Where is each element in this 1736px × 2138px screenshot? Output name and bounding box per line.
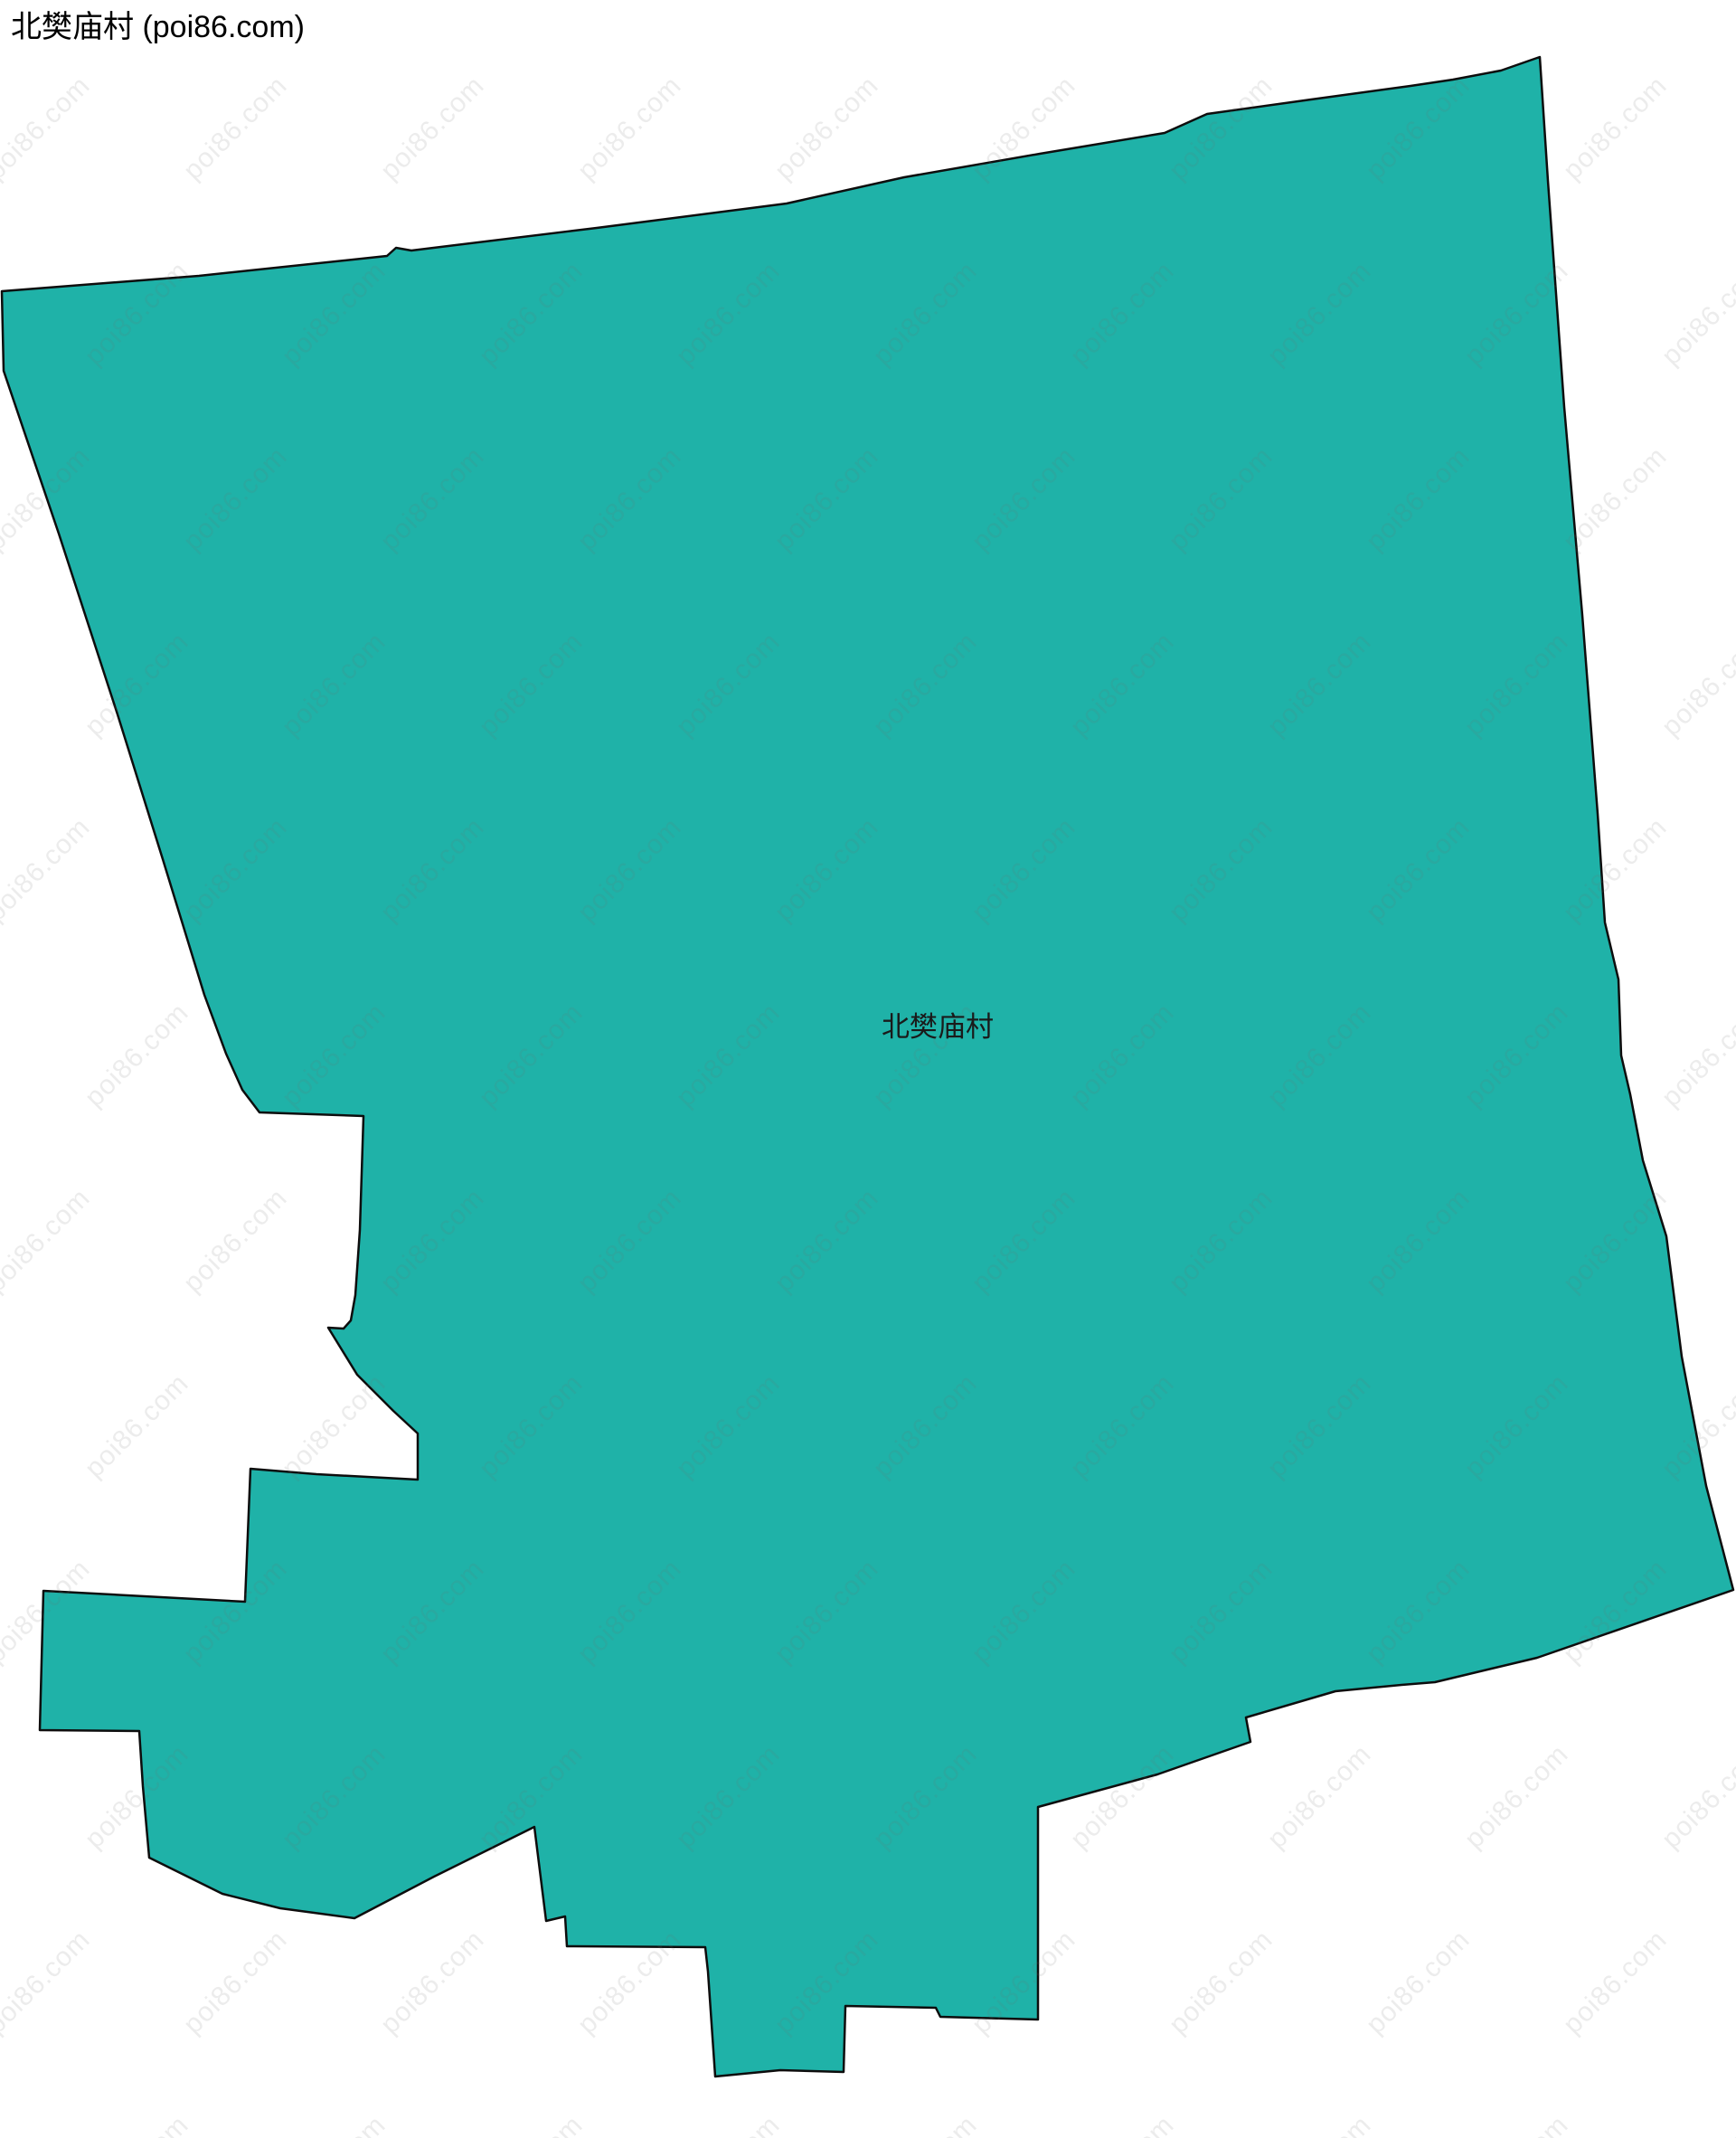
page-title: 北樊庙村 (poi86.com) bbox=[11, 9, 305, 46]
region-map-svg bbox=[0, 0, 1736, 2138]
region-polygon bbox=[2, 57, 1733, 2077]
region-label: 北樊庙村 bbox=[882, 1004, 994, 1045]
map-canvas: poi86.compoi86.compoi86.compoi86.compoi8… bbox=[0, 0, 1736, 2138]
